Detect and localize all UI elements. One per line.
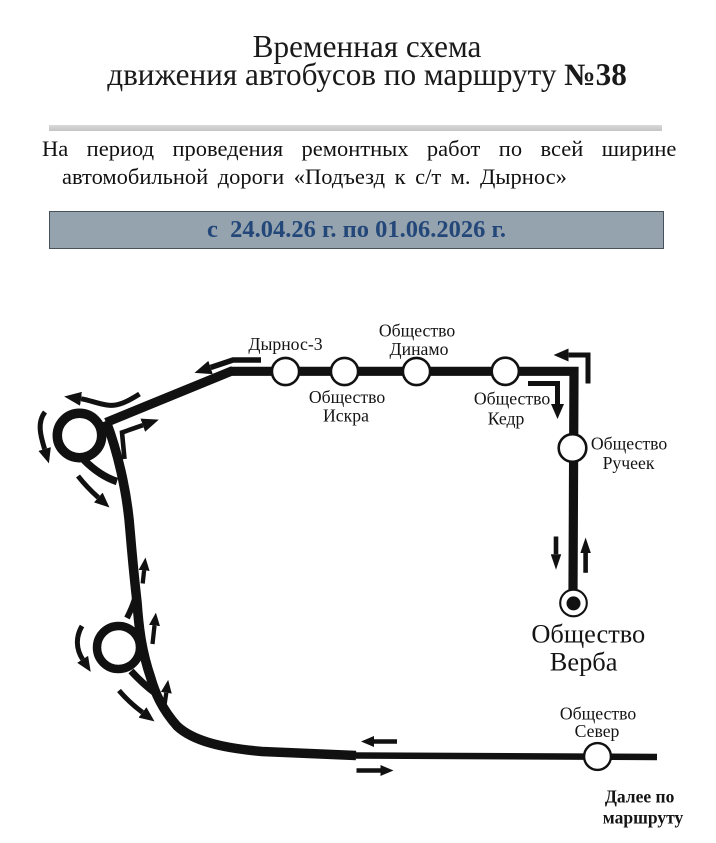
svg-text:Север: Север <box>575 721 620 741</box>
svg-text:Общество: Общество <box>474 389 550 409</box>
svg-text:Динамо: Динамо <box>390 339 449 359</box>
svg-text:Дырнос-3: Дырнос-3 <box>248 334 322 354</box>
svg-text:Искра: Искра <box>323 405 369 425</box>
svg-text:Далее по: Далее по <box>605 787 675 807</box>
svg-text:маршруту: маршруту <box>603 808 684 828</box>
svg-text:Общество: Общество <box>591 434 667 454</box>
svg-text:Общество: Общество <box>531 619 645 649</box>
svg-text:Общество: Общество <box>309 387 385 407</box>
svg-text:Верба: Верба <box>550 647 618 677</box>
svg-text:Кедр: Кедр <box>488 409 525 429</box>
svg-text:Ручеек: Ручеек <box>603 453 655 473</box>
svg-text:Общество: Общество <box>379 321 455 341</box>
